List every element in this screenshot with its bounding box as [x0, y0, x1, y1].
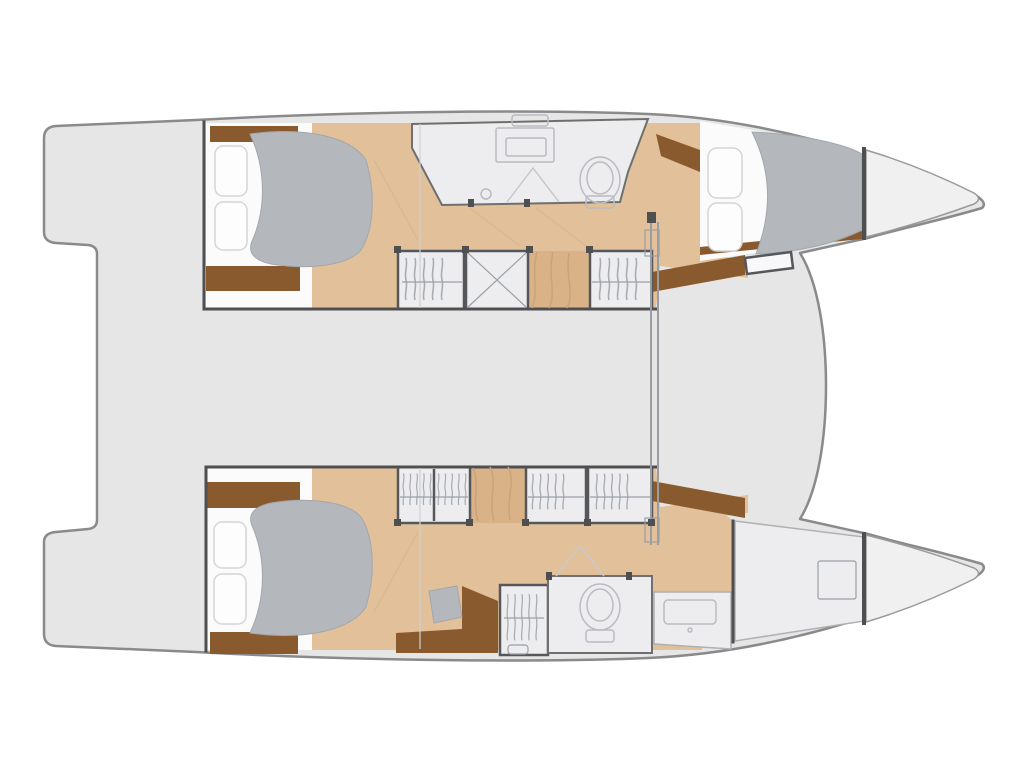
- catamaran-floor-plan: [0, 0, 1024, 769]
- wardrobe-upper-1: [398, 251, 464, 309]
- door-post: [394, 519, 401, 526]
- cabinet-footer-lower: [396, 629, 462, 653]
- footboard-upper: [206, 266, 300, 291]
- door-post: [546, 572, 552, 580]
- door-post: [522, 519, 529, 526]
- duvet-aft-upper: [250, 132, 372, 267]
- door-post: [647, 212, 656, 223]
- door-post: [584, 519, 591, 526]
- forward-compartment-lower: [735, 521, 864, 641]
- door-post: [468, 199, 474, 207]
- door-post: [526, 246, 533, 253]
- pillow-icon: [708, 203, 742, 251]
- duvet-aft-lower: [250, 500, 372, 635]
- pillow-icon: [708, 148, 742, 198]
- pillow-icon: [215, 202, 247, 250]
- pillow-icon: [214, 574, 246, 624]
- staircase-lower: [470, 467, 526, 523]
- door-post: [394, 246, 401, 253]
- door-post: [462, 246, 469, 253]
- pillow-icon: [215, 146, 247, 196]
- floor-plan-canvas: [0, 0, 1024, 769]
- forepeak-lockers: [866, 150, 979, 622]
- door-post: [626, 572, 632, 580]
- door-post: [524, 199, 530, 207]
- door-post: [586, 246, 593, 253]
- door-post: [648, 519, 655, 526]
- stool: [429, 586, 462, 623]
- staircase-upper: [528, 251, 590, 309]
- door-post: [466, 519, 473, 526]
- pillow-icon: [214, 522, 246, 568]
- duvet-forward-upper: [752, 132, 862, 254]
